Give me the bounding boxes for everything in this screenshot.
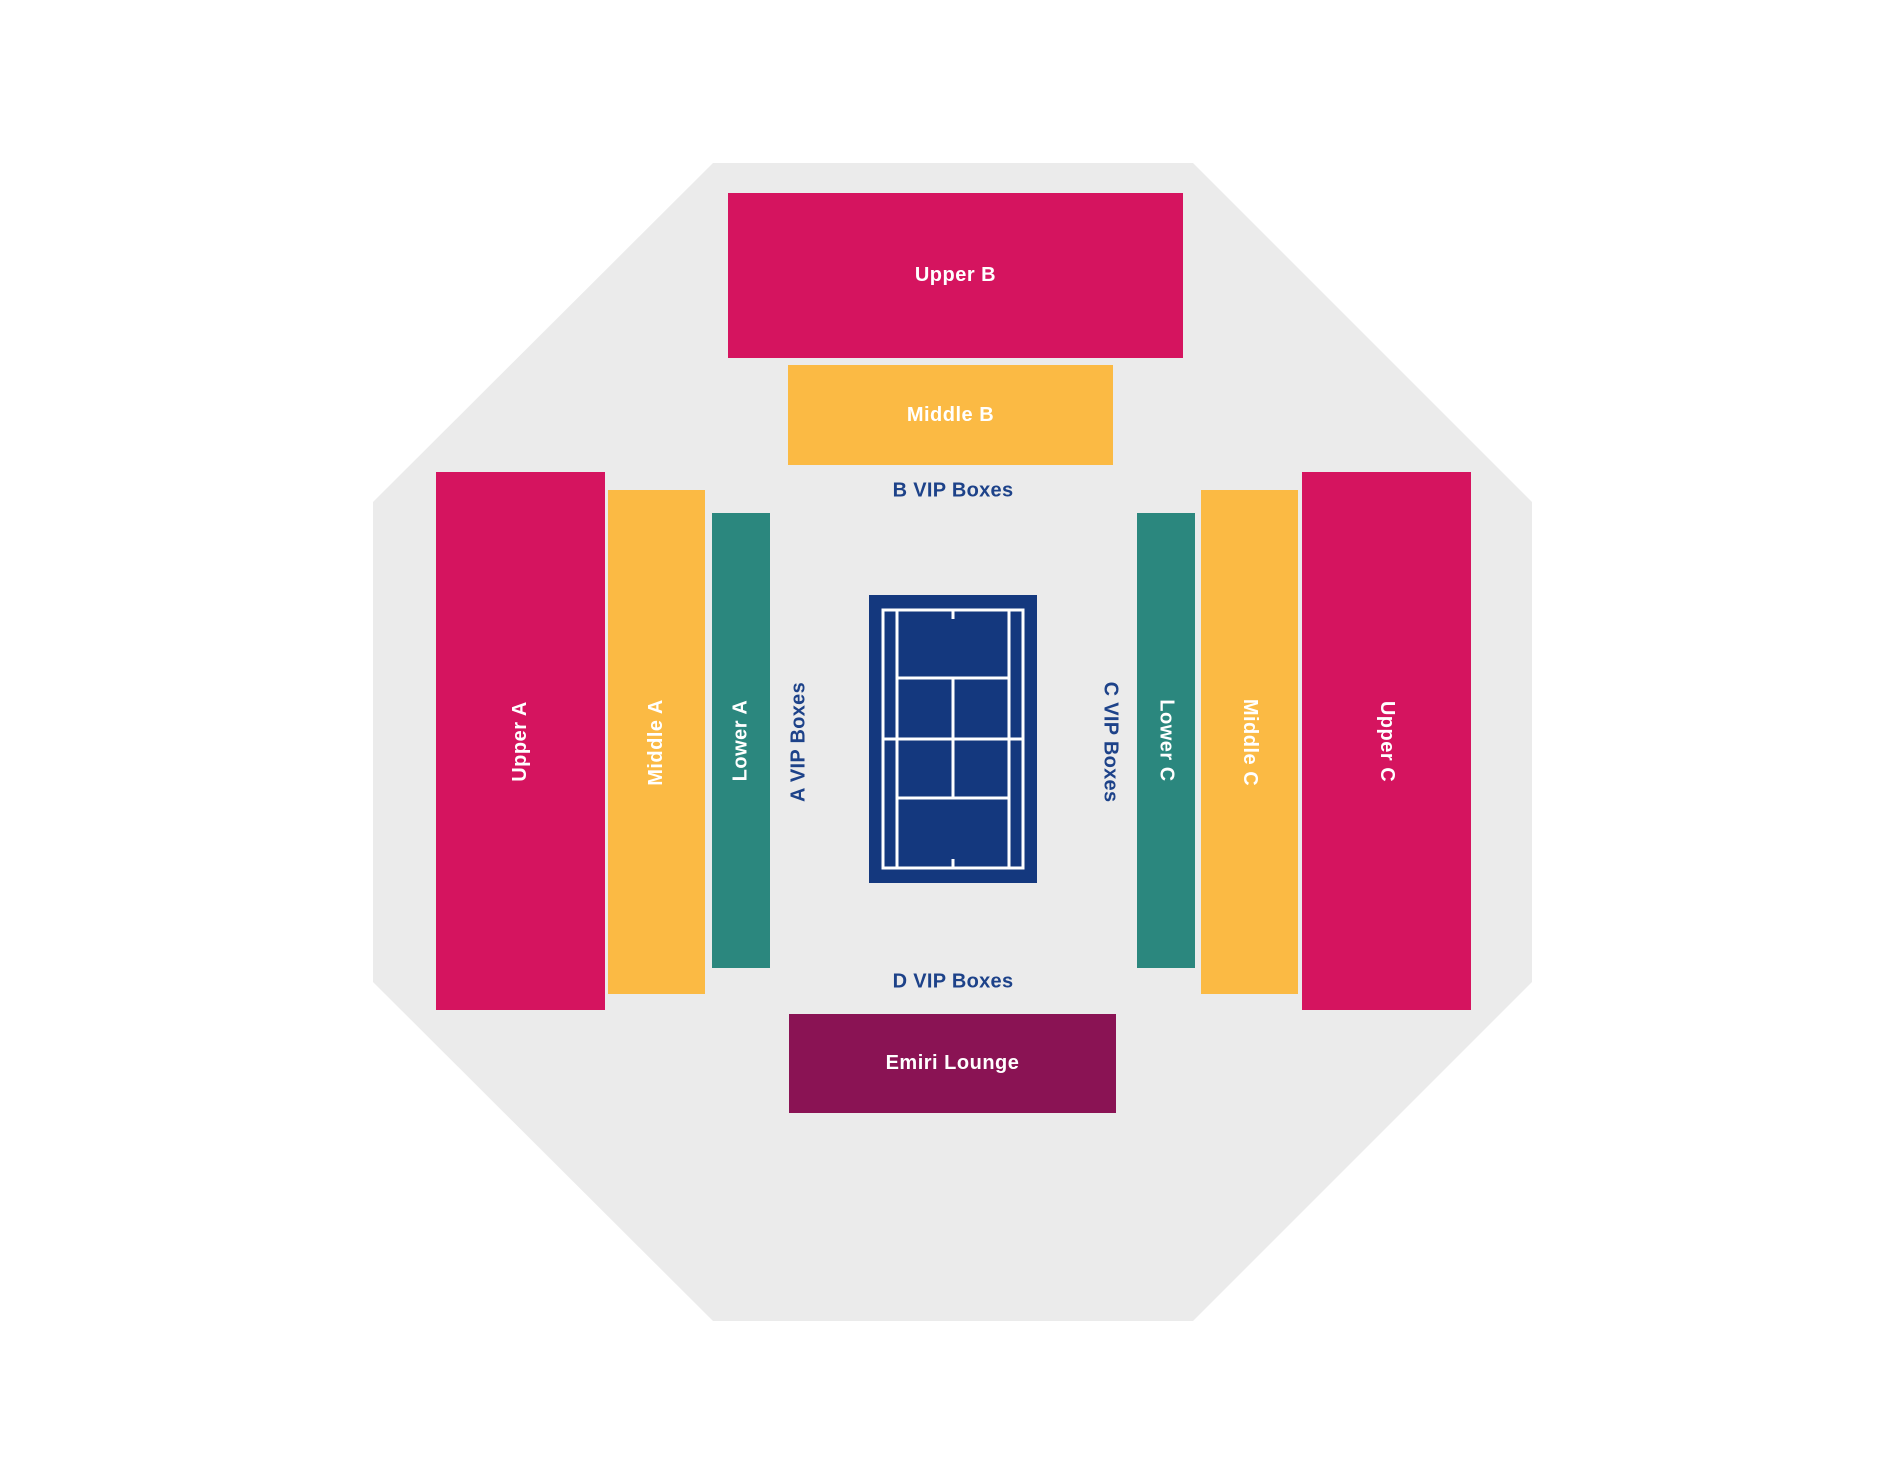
section-middle-c-label: Middle C	[1238, 698, 1261, 785]
section-upper-c-label: Upper C	[1375, 700, 1398, 781]
section-b-vip-boxes-label[interactable]: B VIP Boxes	[893, 480, 1014, 503]
section-middle-c[interactable]: Middle C	[1201, 490, 1298, 994]
section-middle-b-label: Middle B	[907, 404, 994, 427]
section-emiri-lounge[interactable]: Emiri Lounge	[789, 1014, 1116, 1113]
section-lower-c[interactable]: Lower C	[1137, 513, 1195, 968]
section-upper-b[interactable]: Upper B	[728, 193, 1183, 358]
section-d-vip-boxes-label[interactable]: D VIP Boxes	[893, 971, 1014, 994]
tennis-court	[869, 595, 1037, 883]
section-middle-a-label: Middle A	[645, 699, 668, 786]
section-lower-a[interactable]: Lower A	[712, 513, 770, 968]
section-middle-b[interactable]: Middle B	[788, 365, 1113, 465]
section-upper-a-label: Upper A	[509, 701, 532, 782]
section-emiri-lounge-label: Emiri Lounge	[886, 1052, 1020, 1075]
section-lower-a-label: Lower A	[730, 700, 753, 782]
section-upper-a[interactable]: Upper A	[436, 472, 605, 1010]
seating-map-canvas: Upper B Middle B B VIP Boxes Upper A Mid…	[0, 0, 1900, 1483]
tennis-court-graphic	[869, 595, 1037, 883]
section-a-vip-boxes-label[interactable]: A VIP Boxes	[788, 682, 811, 802]
section-lower-c-label: Lower C	[1155, 699, 1178, 781]
section-upper-b-label: Upper B	[915, 264, 996, 287]
section-upper-c[interactable]: Upper C	[1302, 472, 1471, 1010]
section-middle-a[interactable]: Middle A	[608, 490, 705, 994]
section-c-vip-boxes-label[interactable]: C VIP Boxes	[1099, 682, 1122, 803]
